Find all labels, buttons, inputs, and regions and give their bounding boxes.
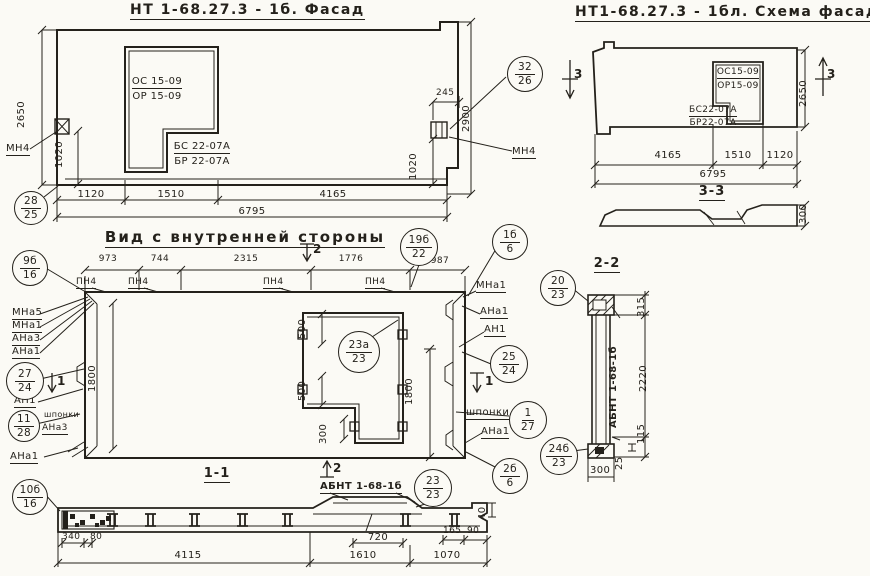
callout-1b-6: 1б6 xyxy=(492,224,528,260)
schema-opening-label-br: БР22-07А xyxy=(684,119,742,129)
callout-23-23: 2323 xyxy=(414,469,452,507)
callout-10b-16: 10б16 xyxy=(12,479,48,515)
callout-23a-23: 23а23 xyxy=(338,331,380,373)
callout-11-28: 1128 xyxy=(8,410,40,442)
facade-opening-label-bs: БС 22-07А xyxy=(168,141,236,152)
inner-pn4-label-2: ПН4 xyxy=(128,278,148,288)
schema-mark3-right: 3 xyxy=(827,68,836,81)
inner-label-ana3-left: АНа3 xyxy=(42,424,68,434)
section-1-1-title: 1-1 xyxy=(195,467,239,481)
s11-dim-720: 720 xyxy=(358,532,398,543)
facade-mn4-right-label: МН4 xyxy=(512,146,536,157)
s11-dim-40: 40 xyxy=(477,506,489,520)
schema-dim-w3: 1120 xyxy=(758,150,802,161)
facade-dim-1020-right: 1020 xyxy=(408,153,420,180)
s11-dim-80: 80 xyxy=(90,533,102,543)
facade-opening-label-os: ОС 15-09 xyxy=(128,76,186,87)
inner-dim-1776: 1776 xyxy=(327,255,375,265)
s11-dim-165: 165 xyxy=(443,527,461,537)
facade-dim-1020-left: 1020 xyxy=(54,141,66,168)
s11-dim-1610: 1610 xyxy=(338,550,388,561)
s11-abnt-label: АБНТ 1-68-1б xyxy=(320,481,402,492)
inner-label-an1-right: АН1 xyxy=(484,324,506,335)
blueprint-sheet: НТ 1-68.27.3 - 1б. Фасад ОС 15-09 ОР 15-… xyxy=(0,0,870,576)
inner-mark1-right: 1 xyxy=(485,375,494,388)
section-3-3-dim-300: 300 xyxy=(798,204,810,224)
facade-opening-label-br: БР 22-07А xyxy=(168,156,236,167)
inner-dim-300: 300 xyxy=(318,424,330,444)
facade-dim-245: 245 xyxy=(436,89,454,99)
s22-dim-300: 300 xyxy=(590,465,610,476)
inner-label-ana1-right: АНа1 xyxy=(480,306,508,317)
inner-label-shponki-left: шпонки xyxy=(44,411,79,420)
inner-dim-973: 973 xyxy=(88,255,128,265)
callout-20-23: 2023 xyxy=(540,270,576,306)
s11-dim-340: 340 xyxy=(62,533,80,543)
callout-19b-22: 19б22 xyxy=(400,228,438,266)
s22-dim-315: 315 xyxy=(636,297,648,317)
callout-24b-23: 24б23 xyxy=(540,437,578,475)
inner-label-shponki-right: шпонки xyxy=(466,407,509,418)
s22-abnt-label: АБНТ 1-68-1б xyxy=(608,346,620,428)
inner-mark2-top: 2 xyxy=(313,243,322,256)
s11-dim-90: 90 xyxy=(467,527,479,537)
inner-dim-500a: 500 xyxy=(297,319,309,339)
schema-opening-label-os: ОС15-09 xyxy=(714,68,762,78)
facade-dim-height-left: 2650 xyxy=(16,101,28,128)
callout-9b-16: 9б16 xyxy=(12,250,48,286)
inner-label-mna1-right: МНа1 xyxy=(476,280,506,291)
facade-dim-w3: 4165 xyxy=(303,189,363,200)
inner-label-ana1-right-2: АНа1 xyxy=(481,426,509,437)
inner-dim-744: 744 xyxy=(140,255,180,265)
schema-dim-w1: 4165 xyxy=(640,150,696,161)
inner-dim-500b: 500 xyxy=(297,381,309,401)
s22-dim-25: 25 xyxy=(614,456,626,470)
inner-dim-2315: 2315 xyxy=(222,255,270,265)
s22-dim-115: 115 xyxy=(636,424,648,444)
callout-32-26: 3226 xyxy=(507,56,543,92)
facade-title: НТ 1-68.27.3 - 1б. Фасад xyxy=(130,3,350,18)
inner-pn4-label-4: ПН4 xyxy=(365,278,385,288)
facade-dim-w1: 1120 xyxy=(61,189,121,200)
inner-pn4-label-1: ПН4 xyxy=(76,278,96,288)
facade-mn4-left-label: МН4 xyxy=(6,143,30,154)
callout-28-25: 2825 xyxy=(14,191,48,225)
inner-mark2-bottom: 2 xyxy=(333,462,342,475)
facade-dim-total: 6795 xyxy=(222,206,282,217)
inner-label-ana1: АНа1 xyxy=(12,346,40,357)
s22-dim-2220: 2220 xyxy=(638,365,650,392)
inner-label-ana1-bottom-left: АНа1 xyxy=(10,451,38,462)
s11-dim-4115: 4115 xyxy=(160,550,216,561)
inner-dim-1800-left: 1800 xyxy=(87,365,99,392)
section-3-3-title: 3-3 xyxy=(690,185,734,199)
schema-mark3-left: 3 xyxy=(574,68,583,81)
callout-1-27: 127 xyxy=(509,401,547,439)
facade-dim-w2: 1510 xyxy=(141,189,201,200)
inner-pn4-label-3: ПН4 xyxy=(263,278,283,288)
inner-label-mna1: МНа1 xyxy=(12,320,42,331)
schema-opening-label-bs: БС22-07А xyxy=(684,106,742,116)
schema-dim-total: 6795 xyxy=(688,169,738,180)
inner-dim-1800-right: 1800 xyxy=(404,378,416,405)
schema-opening-label-or: ОР15-09 xyxy=(714,82,762,92)
s11-dim-1070: 1070 xyxy=(422,550,472,561)
facade-opening-label-or: ОР 15-09 xyxy=(128,91,186,102)
callout-2b-6: 2б6 xyxy=(492,458,528,494)
facade-dim-height-right: 2900 xyxy=(461,105,473,132)
inner-label-ana3: АНа3 xyxy=(12,333,40,344)
inner-mark1-left: 1 xyxy=(57,375,66,388)
callout-27-24: 2724 xyxy=(6,362,44,400)
inner-label-mna5: МНа5 xyxy=(12,307,42,318)
callout-25-24: 2524 xyxy=(490,345,528,383)
inner-view-title: Вид с внутренней стороны xyxy=(100,229,390,246)
section-2-2-title: 2-2 xyxy=(585,257,629,271)
schema-title: НТ1-68.27.3 - 1бл. Схема фасада xyxy=(575,5,865,20)
schema-view-lines xyxy=(562,42,831,230)
schema-dim-height: 2650 xyxy=(798,80,810,107)
schema-dim-w2: 1510 xyxy=(713,150,763,161)
